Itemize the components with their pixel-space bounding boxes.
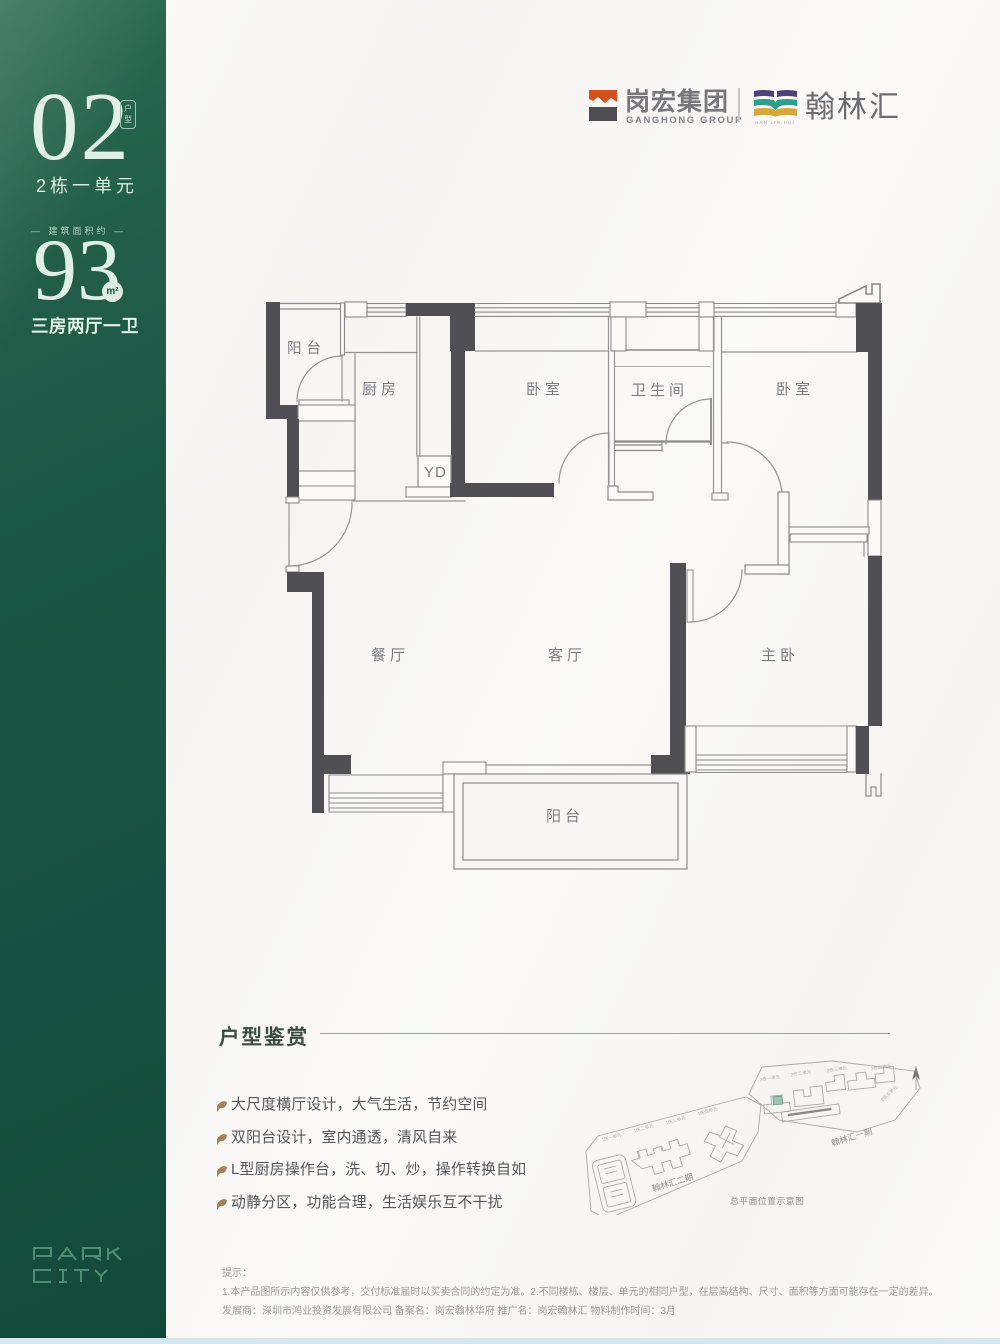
svg-text:YD: YD xyxy=(424,464,447,481)
svg-text:2栋三单元: 2栋三单元 xyxy=(826,1064,848,1074)
svg-text:阳台: 阳台 xyxy=(287,340,326,357)
svg-text:卧室: 卧室 xyxy=(776,381,814,398)
svg-text:卫生间: 卫生间 xyxy=(631,382,688,399)
svg-text:2栋二单元: 2栋二单元 xyxy=(790,1068,812,1078)
svg-text:1栋一单元: 1栋一单元 xyxy=(601,1131,623,1144)
svg-text:卧室: 卧室 xyxy=(526,381,564,398)
svg-text:2栋四单元: 2栋四单元 xyxy=(870,1062,892,1072)
svg-text:总平面位置示意图: 总平面位置示意图 xyxy=(730,1195,804,1206)
svg-text:阳台: 阳台 xyxy=(546,808,584,825)
svg-text:翰林汇一期: 翰林汇一期 xyxy=(830,1126,874,1148)
svg-text:客厅: 客厅 xyxy=(548,647,586,664)
svg-text:翰林汇二期: 翰林汇二期 xyxy=(651,1172,695,1194)
svg-text:2栋五单元: 2栋五单元 xyxy=(879,1084,899,1103)
svg-text:餐厅: 餐厅 xyxy=(371,647,409,664)
svg-text:主卧: 主卧 xyxy=(761,647,799,664)
svg-text:2栋一单元: 2栋一单元 xyxy=(759,1073,781,1083)
svg-text:厨房: 厨房 xyxy=(362,381,400,398)
